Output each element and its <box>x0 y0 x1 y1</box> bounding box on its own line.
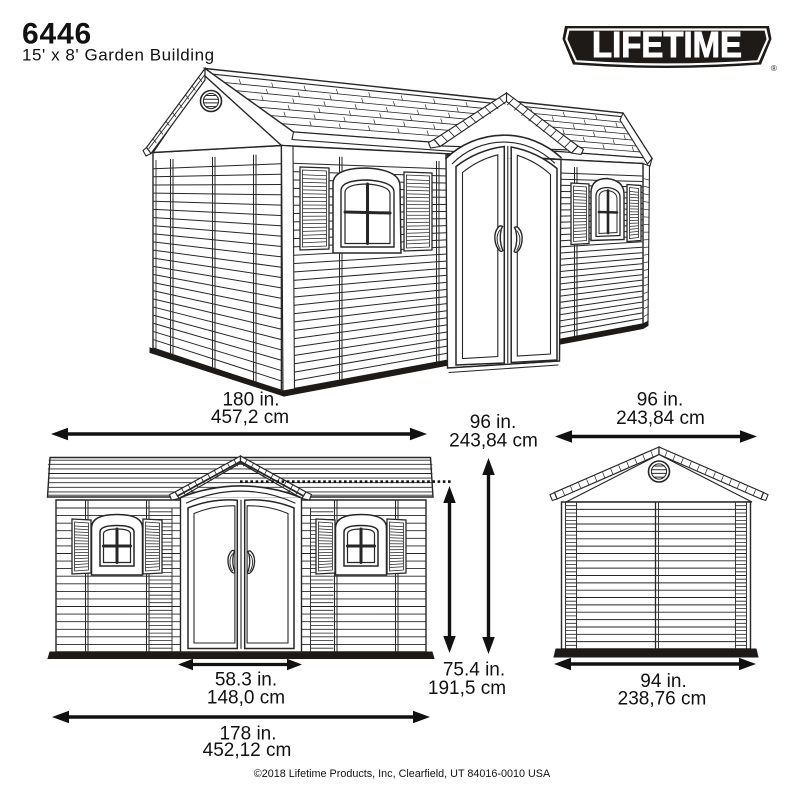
svg-text:243,84 cm: 243,84 cm <box>616 408 705 429</box>
svg-text:©2018 Lifetime Products, Inc,: ©2018 Lifetime Products, Inc, Clearfield… <box>254 768 551 780</box>
svg-text:457,2 cm: 457,2 cm <box>211 407 289 428</box>
svg-text:243,84 cm: 243,84 cm <box>449 431 538 452</box>
svg-text:148,0 cm: 148,0 cm <box>207 688 285 709</box>
svg-text:15' x 8' Garden Building: 15' x 8' Garden Building <box>22 46 215 65</box>
svg-text:®: ® <box>771 64 777 73</box>
svg-text:238,76 cm: 238,76 cm <box>618 689 707 710</box>
svg-text:LIFETIME: LIFETIME <box>592 24 742 65</box>
svg-text:452,12 cm: 452,12 cm <box>203 740 292 761</box>
svg-text:191,5 cm: 191,5 cm <box>428 678 506 699</box>
